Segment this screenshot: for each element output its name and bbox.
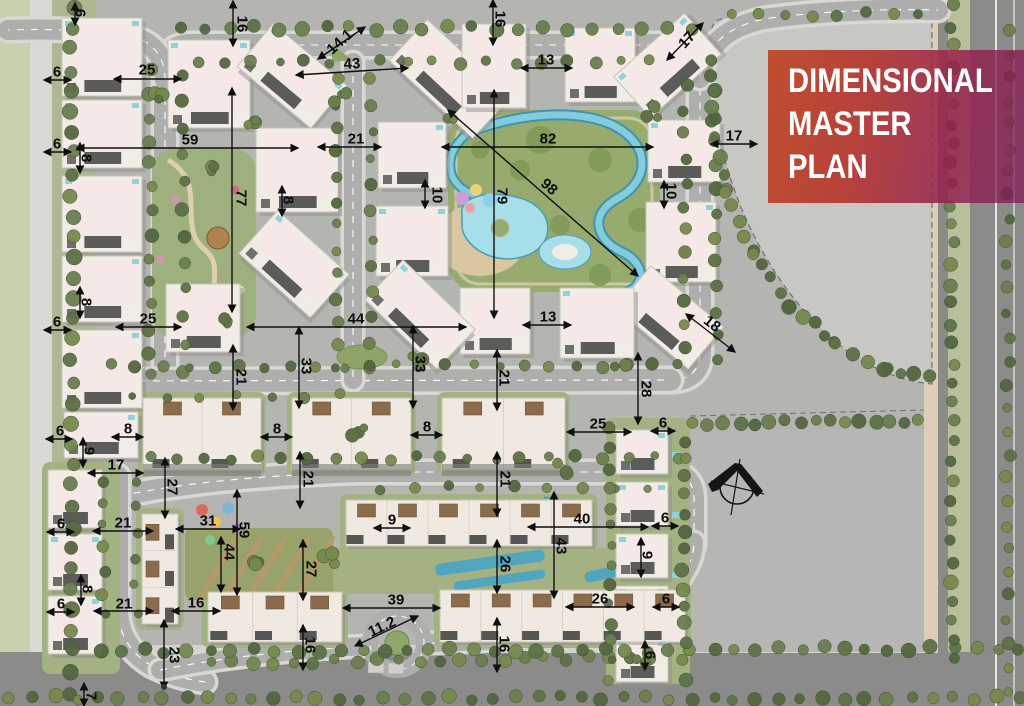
dimension-label: 13 xyxy=(538,52,555,69)
dimension-label: 59 xyxy=(182,132,199,149)
dimension-label: 21 xyxy=(116,596,133,613)
dimension-label: 8 xyxy=(124,421,132,438)
dimension-label: 43 xyxy=(343,55,361,73)
dimension-label: 6 xyxy=(662,591,670,608)
dimension-label: 44 xyxy=(348,311,365,328)
dimension-label: 10 xyxy=(429,187,446,204)
dimension-label: 8 xyxy=(78,154,95,162)
dimension-label: 21 xyxy=(300,471,317,488)
dimension-label: 23 xyxy=(166,647,183,664)
dimension-label: 77 xyxy=(233,190,250,207)
dimension-label: 82 xyxy=(540,131,557,148)
dimension-label: 27 xyxy=(303,561,320,578)
dimension-label: 9 xyxy=(388,512,396,529)
dimension-label: 8 xyxy=(78,298,95,306)
vacant-parcel-south xyxy=(688,430,924,652)
dimension-label: 21 xyxy=(496,370,513,387)
dimension-label: 25 xyxy=(590,416,607,433)
dimension-label: 6 xyxy=(53,314,61,331)
dimension-label: 17 xyxy=(108,457,125,474)
dimension-label: 6 xyxy=(642,651,659,659)
building xyxy=(560,288,638,362)
dimensional-master-plan: 61614.1431613176256598218217778107998108… xyxy=(0,0,1024,706)
dimension-label: 33 xyxy=(412,356,429,373)
dimension-label: 16 xyxy=(492,11,509,28)
dimension-label: 7 xyxy=(83,692,100,700)
dimension-label: 44 xyxy=(221,544,238,561)
dimension-label: 6 xyxy=(661,510,669,527)
dimension-label: 6 xyxy=(72,9,89,17)
dimension-label: 27 xyxy=(164,479,181,496)
dimension-label: 33 xyxy=(298,358,315,375)
dimension-label: 79 xyxy=(494,188,511,205)
dimension-label: 17 xyxy=(726,128,743,145)
dimension-label: 13 xyxy=(540,309,557,326)
building xyxy=(460,288,534,358)
dimension-label: 16 xyxy=(188,595,205,612)
title-line-2: MASTER xyxy=(788,103,991,146)
dimension-label: 16 xyxy=(234,16,251,33)
dimension-label: 10 xyxy=(663,183,680,200)
dimension-label: 8 xyxy=(273,421,281,438)
townhouse-row xyxy=(440,590,688,645)
dimension-label: 6 xyxy=(57,596,65,613)
dimension-label: 16 xyxy=(496,636,513,653)
building xyxy=(616,430,672,478)
dimension-label: 6 xyxy=(659,415,667,432)
dimension-label: 16 xyxy=(302,637,319,654)
dimension-label: 8 xyxy=(79,585,96,593)
dimension-label: 40 xyxy=(574,511,591,528)
dimension-label: 9 xyxy=(639,551,656,559)
title-line-1: DIMENSIONAL xyxy=(788,60,991,103)
dimension-label: 39 xyxy=(388,592,405,609)
dimension-label: 43 xyxy=(553,538,570,555)
dimension-label: 8 xyxy=(423,419,431,436)
dimension-label: 21 xyxy=(115,515,132,532)
dimension-label: 26 xyxy=(497,556,514,573)
dimension-label: 21 xyxy=(233,369,250,386)
dimension-label: 21 xyxy=(497,471,514,488)
townhouse-row xyxy=(442,398,568,473)
dimension-label: 31 xyxy=(200,513,217,530)
dimension-label: 6 xyxy=(53,64,61,81)
dimension-label: 59 xyxy=(236,522,253,539)
dimension-label: 28 xyxy=(638,381,655,398)
building xyxy=(376,206,452,280)
dimension-label: 6 xyxy=(57,516,65,533)
title-line-3: PLAN xyxy=(788,146,991,189)
building xyxy=(378,122,450,192)
dimension-label: 21 xyxy=(348,131,365,148)
dimension-label: 25 xyxy=(139,62,156,79)
dimension-label: 26 xyxy=(592,591,609,608)
dimension-label: 6 xyxy=(53,136,61,153)
title-block: DIMENSIONAL MASTER PLAN xyxy=(768,50,1024,203)
dimension-label: 8 xyxy=(280,196,297,204)
townhouse-row xyxy=(208,592,345,645)
building xyxy=(168,40,254,132)
dimension-label: 25 xyxy=(140,311,157,328)
dimension-label: 9 xyxy=(81,447,98,455)
dimension-label: 6 xyxy=(56,423,64,440)
building xyxy=(256,128,342,216)
building xyxy=(48,534,106,594)
